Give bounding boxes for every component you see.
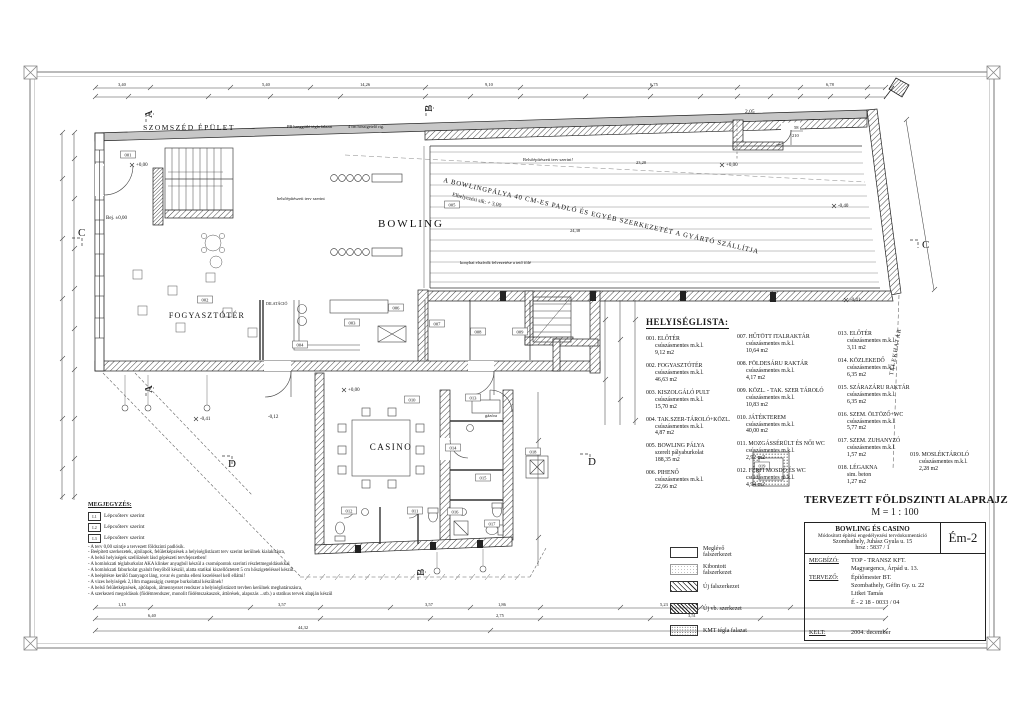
section-marker: C: [922, 239, 929, 251]
legend-swatch-removed: [670, 564, 698, 575]
room-name: TAK.SZER-TÁROLÓ+KÖZL.: [658, 417, 731, 423]
room-area: 9,12 m2: [646, 350, 734, 357]
level-mark: -0,12: [268, 415, 279, 420]
room-code: 008.: [737, 361, 747, 367]
dim-label: 3,40: [118, 82, 127, 88]
room-area: 10,64 m2: [737, 348, 825, 355]
room-tag: 016: [452, 510, 460, 515]
legend-swatch-new-rc: [670, 603, 698, 614]
room-name: JÁTÉKTEREM: [749, 415, 786, 421]
interior-note-top: Belsőépítészeti terv szerint!: [523, 157, 573, 162]
room-list-item: 008. FÖLDESÁRU RAKTÁRcsúszásmentes m.k.l…: [737, 361, 825, 382]
room-code: 018.: [838, 465, 848, 471]
legend-item: KMT tégla falazat: [670, 625, 780, 636]
bowling-lanes: [424, 146, 880, 288]
room-code: 011.: [737, 441, 747, 447]
legend-label: Kibontott falszerkezet: [703, 564, 753, 577]
room-name: FÖLDESÁRU RAKTÁR: [749, 361, 808, 367]
room-code: 016.: [838, 412, 848, 418]
client-address: Magyargencs, Árpád u. 13.: [851, 565, 918, 573]
fogyasztoter-label: FOGYASZTÓTÉR: [169, 310, 245, 320]
room-finish: csúszásmentes m.k.l.: [737, 395, 825, 402]
room-finish: csúszásmentes m.k.l.: [646, 424, 734, 431]
legend-label: Meglévő falszerkezet: [703, 546, 753, 559]
interior-note-left: belsőépítészeti terv szerint: [277, 196, 325, 201]
fogyasztoter-tables: [133, 233, 257, 337]
room-list-item: 015. SZÁRAZÁRU RAKTÁRcsúszásmentes m.k.l…: [838, 385, 918, 406]
stair-note-text: Lépcsőterv szerint: [104, 535, 144, 542]
room-finish: csúszásmentes m.k.l.: [838, 338, 918, 345]
room-name: KÖZLEKEDŐ: [850, 358, 885, 364]
level-mark: +0,00: [136, 163, 148, 168]
level-mark: +0,00: [348, 388, 360, 393]
room-finish: csúszásmentes m.k.l.: [737, 368, 825, 375]
room-name: MOSLÉKTÁROLÓ: [922, 452, 969, 458]
level-mark: -0,41: [850, 298, 861, 303]
room-area: 5,77 m2: [838, 425, 918, 432]
level-mark: -0,40: [838, 204, 849, 209]
room-code: 003.: [646, 390, 656, 396]
room-name: SZEM. ZUHANYZÓ: [850, 438, 901, 444]
room-area: 10,83 m2: [737, 402, 825, 409]
room-list-item: 003. KISZOLGÁLÓ PULTcsúszásmentes m.k.l.…: [646, 390, 734, 411]
room-code: 004.: [646, 417, 656, 423]
kitchen-vent-note: konyhai elszívók felvezetése a tető fölé: [460, 260, 531, 265]
room-name: KISZOLGÁLÓ PULT: [658, 390, 710, 396]
room-area: 40,00 m2: [737, 428, 825, 435]
section-marker: A: [143, 385, 155, 393]
room-tag: 017: [489, 522, 497, 527]
room-area: 22,66 m2: [646, 484, 734, 491]
legend-item: Meglévő falszerkezet: [670, 546, 780, 559]
room-code: 007.: [737, 334, 747, 340]
room-area: 1,57 m2: [838, 452, 918, 459]
room-tag: 015: [480, 476, 488, 481]
room-tag: 010: [409, 398, 417, 403]
room-finish: csúszásmentes m.k.l.: [737, 341, 825, 348]
note-line: - A szerkezeti megoldások (födémrendszer…: [88, 592, 388, 598]
room-tag: 011: [412, 509, 419, 514]
room-list-item: 019. MOSLÉKTÁROLÓcsúszásmentes m.k.l.2,2…: [910, 452, 988, 473]
stair-note-text: Lépcsőterv szerint: [104, 524, 144, 531]
room-name: ELŐTÉR: [850, 331, 872, 337]
room-name: MOZGÁSSÉRÜLT ÉS NŐI WC: [748, 441, 824, 447]
room-tag: 004: [297, 343, 305, 348]
room-list-item: 017. SZEM. ZUHANYZÓcsúszásmentes m.k.l.1…: [838, 438, 918, 459]
room-tag: 018: [530, 450, 538, 455]
designer-registration: É - 2 18 - 0033 / 04: [851, 599, 899, 607]
dim-label: 5,23: [660, 602, 669, 608]
designer-person: Litkei Tamás: [851, 590, 883, 598]
bowling-diagonal-note: A BOWLINGPÁLYA 40 CM-ES PADLÓ ÉS EGYÉB S…: [443, 176, 760, 255]
legend-label: Új falszerkezet: [703, 584, 739, 590]
room-area: 15,70 m2: [646, 404, 734, 411]
north-arrow-icon: [884, 78, 909, 99]
room-area: 3,11 m2: [838, 345, 918, 352]
designer-name: Építőmester BT.: [851, 574, 891, 582]
stair-note-text: Lépcsőterv szerint: [104, 513, 144, 520]
room-finish: csúszásmentes m.k.l.: [737, 475, 825, 482]
title-block-table: BOWLING ÉS CASINO Módosított építési eng…: [804, 522, 986, 641]
room-code: 006.: [646, 470, 656, 476]
title-block: TERVEZETT FÖLDSZINTI ALAPRAJZ M = 1 : 10…: [804, 494, 986, 641]
room-list-item: 005. BOWLING PÁLYAszerelt pályaburkolat1…: [646, 443, 734, 464]
drawing-number: Ém-2: [940, 523, 985, 553]
room-list-item: 014. KÖZLEKEDŐcsúszásmentes m.k.l.6,35 m…: [838, 358, 918, 379]
room-area: 1,27 m2: [838, 479, 918, 486]
level-mark: +0,00: [726, 163, 738, 168]
room-finish: csúszásmentes m.k.l.: [910, 459, 988, 466]
room-name: ELŐTÉR: [658, 336, 680, 342]
room-tag: 006: [393, 306, 401, 311]
room-list-heading: HELYISÉGLISTA:: [646, 317, 729, 329]
room-list-item: 009. KÖZL. - TAK. SZER TÁROLÓcsúszásment…: [737, 388, 825, 409]
bowling-label: BOWLING: [378, 218, 444, 230]
room-area: 188,35 m2: [646, 457, 734, 464]
room-code: 019.: [910, 452, 920, 458]
dilatation-label: DILATÁCIÓ: [266, 301, 287, 306]
room-finish: szerelt pályaburkolat: [646, 450, 734, 457]
dim-label: 14,26: [360, 82, 371, 88]
dim-label: 23,20: [636, 160, 647, 166]
room-tag: 001: [125, 153, 133, 158]
room-tag: 005: [449, 203, 457, 208]
room-finish: csúszásmentes m.k.l.: [737, 448, 825, 455]
legend-item: Kibontott falszerkezet: [670, 564, 780, 577]
room-code: 010.: [737, 415, 747, 421]
room-code: 005.: [646, 443, 656, 449]
legend-swatch-kmt-brick: [670, 625, 698, 636]
sheet-scale: M = 1 : 100: [804, 507, 986, 518]
room-name: LÉGAKNA: [850, 465, 878, 471]
designer-label: TERVEZŐ:: [809, 574, 851, 582]
room-code: 017.: [838, 438, 848, 444]
room-tag: 003: [349, 321, 357, 326]
room-area: 6,35 m2: [838, 372, 918, 379]
stair-note: L2Lépcsőterv szerint: [88, 523, 388, 532]
room-list-item: 006. PIHENŐcsúszásmentes m.k.l.22,66 m2: [646, 470, 734, 491]
room-list-item: 010. JÁTÉKTEREMcsúszásmentes m.k.l.40,00…: [737, 415, 825, 436]
room-name: FÉRFI MOSDÓ ÉS WC: [749, 468, 806, 474]
project-name: BOWLING ÉS CASINO: [806, 525, 939, 533]
room-list-item: 002. FOGYASZTÓTÉRcsúszásmentes m.k.l.46,…: [646, 363, 734, 384]
room-code: 015.: [838, 385, 848, 391]
room-finish: csúszásmentes m.k.l.: [646, 477, 734, 484]
room-code: 012.: [737, 468, 747, 474]
door-size-label: 58: [794, 125, 799, 130]
dim-label: 9,10: [485, 82, 494, 88]
room-finish: csúszásmentes m.k.l.: [838, 445, 918, 452]
section-marker: C: [78, 227, 85, 239]
room-name: KÖZL. - TAK. SZER TÁROLÓ: [749, 388, 824, 394]
pb-wall-note2: 4 cm hőszigetelő rtg.: [348, 124, 384, 129]
stair-code-box: L1: [88, 512, 101, 521]
notes-block: MEGJEGYZÉS: L1Lépcsőterv szerint L2Lépcs…: [88, 502, 388, 598]
room-tag: 009: [517, 330, 525, 335]
room-finish: csúszásmentes m.k.l.: [838, 365, 918, 372]
room-code: 013.: [838, 331, 848, 337]
room-finish: csúszásmentes m.k.l.: [838, 419, 918, 426]
drawing-sheet: SZOMSZÉD ÉPÜLET BOWLING FOGYASZTÓTÉR CAS…: [0, 0, 1024, 725]
room-list-item: 001. ELŐTÉRcsúszásmentes m.k.l.9,12 m2: [646, 336, 734, 357]
wall-legend: Meglévő falszerkezet Kibontott falszerke…: [670, 546, 780, 641]
client-label: MEGBÍZÓ:: [809, 557, 851, 565]
door-size-label: 210: [792, 133, 800, 138]
room-finish: sim. beton: [838, 472, 918, 479]
stair-note: L1Lépcsőterv szerint: [88, 512, 388, 521]
room-finish: csúszásmentes m.k.l.: [646, 370, 734, 377]
notes-heading: MEGJEGYZÉS:: [88, 502, 388, 510]
room-code: 014.: [838, 358, 848, 364]
room-area: 4,94 m2: [737, 482, 825, 489]
room-tag: 008: [475, 330, 483, 335]
room-list-item: 004. TAK.SZER-TÁROLÓ+KÖZL.csúszásmentes …: [646, 417, 734, 438]
neighbor-building-label: SZOMSZÉD ÉPÜLET: [143, 122, 235, 132]
room-finish: csúszásmentes m.k.l.: [838, 392, 918, 399]
room-area: 4,87 m2: [646, 430, 734, 437]
room-list-item: 018. LÉGAKNAsim. beton1,27 m2: [838, 465, 918, 486]
legend-label: Új vb. szerkezet: [703, 606, 742, 612]
dim-label: 6,75: [650, 82, 659, 88]
dim-label: 3,57: [278, 602, 287, 608]
room-tag: 014: [450, 446, 458, 451]
room-tag: 002: [202, 298, 210, 303]
dim-label: 2,05: [745, 109, 755, 115]
dim-label: 6,40: [148, 613, 157, 619]
dim-label: 1,15: [118, 602, 127, 608]
room-code: 002.: [646, 363, 656, 369]
room-area: 2,28 m2: [910, 466, 988, 473]
room-finish: csúszásmentes m.k.l.: [646, 397, 734, 404]
level-mark: -0,41: [200, 417, 211, 422]
room-code: 009.: [737, 388, 747, 394]
room-tag: 007: [434, 322, 442, 327]
legend-swatch-new-wall: [670, 581, 698, 592]
room-name: BOWLING PÁLYA: [658, 443, 705, 449]
dim-label: 6,78: [826, 82, 835, 88]
date-value: 2004. december: [851, 629, 891, 637]
stair-code-box: L2: [88, 523, 101, 532]
room-area: 2,92 m2: [737, 455, 825, 462]
date-label: KELT:: [809, 629, 851, 637]
room-list-item: 011. MOZGÁSSÉRÜLT ÉS NŐI WCcsúszásmentes…: [737, 441, 825, 462]
casino-label: CASINO: [370, 442, 413, 452]
room-list-item: 016. SZEM. ÖLTÖZŐ+WCcsúszásmentes m.k.l.…: [838, 412, 918, 433]
legend-swatch-existing: [670, 547, 698, 558]
stair-top-left: [165, 148, 233, 210]
legend-item: Új vb. szerkezet: [670, 603, 780, 614]
gas-meter-label: gázóra: [485, 413, 497, 418]
room-name: PIHENŐ: [658, 470, 679, 476]
room-name: FOGYASZTÓTÉR: [658, 363, 703, 369]
pb-wall-note: PB hanggátló tégla falazat: [287, 124, 333, 129]
room-finish: csúszásmentes m.k.l.: [737, 422, 825, 429]
parcel-number: hrsz : 5837 / 1: [806, 545, 939, 551]
room-area: 6,35 m2: [838, 399, 918, 406]
room-finish: csúszásmentes m.k.l.: [646, 343, 734, 350]
stair-east: [533, 297, 571, 342]
room-area: 4,17 m2: [737, 375, 825, 382]
room-name: SZEM. ÖLTÖZŐ+WC: [850, 412, 904, 418]
legend-item: Új falszerkezet: [670, 581, 780, 592]
dim-label: 3,57: [425, 602, 434, 608]
room-list-item: 012. FÉRFI MOSDÓ ÉS WCcsúszásmentes m.k.…: [737, 468, 825, 489]
dim-label: 5,40: [262, 82, 271, 88]
level-mark: Bej. ±0,00: [106, 216, 127, 221]
legend-label: KMT tégla falazat: [703, 628, 747, 634]
room-code: 001.: [646, 336, 656, 342]
section-marker: D: [588, 456, 596, 468]
bowling-pinsetter-machines: [331, 174, 402, 256]
dim-label: 44,32: [298, 625, 308, 631]
sheet-title: TERVEZETT FÖLDSZINTI ALAPRAJZ: [804, 494, 986, 506]
dim-label: 1,86: [498, 602, 507, 608]
room-area: 46,63 m2: [646, 377, 734, 384]
room-tag: 013: [470, 396, 478, 401]
room-name: HŰTÖTT ITALRAKTÁR: [749, 334, 810, 340]
stair-code-box: L3: [88, 534, 101, 543]
designer-address: Szombathely, Géfin Gy. u. 22: [851, 582, 924, 590]
room-list-item: 013. ELŐTÉRcsúszásmentes m.k.l.3,11 m2: [838, 331, 918, 352]
room-list-item: 007. HŰTÖTT ITALRAKTÁRcsúszásmentes m.k.…: [737, 334, 825, 355]
dim-label: 2,75: [496, 613, 505, 619]
dim-label: 24,38: [570, 228, 581, 234]
stair-note: L3Lépcsőterv szerint: [88, 534, 388, 543]
room-name: SZÁRAZÁRU RAKTÁR: [850, 385, 910, 391]
